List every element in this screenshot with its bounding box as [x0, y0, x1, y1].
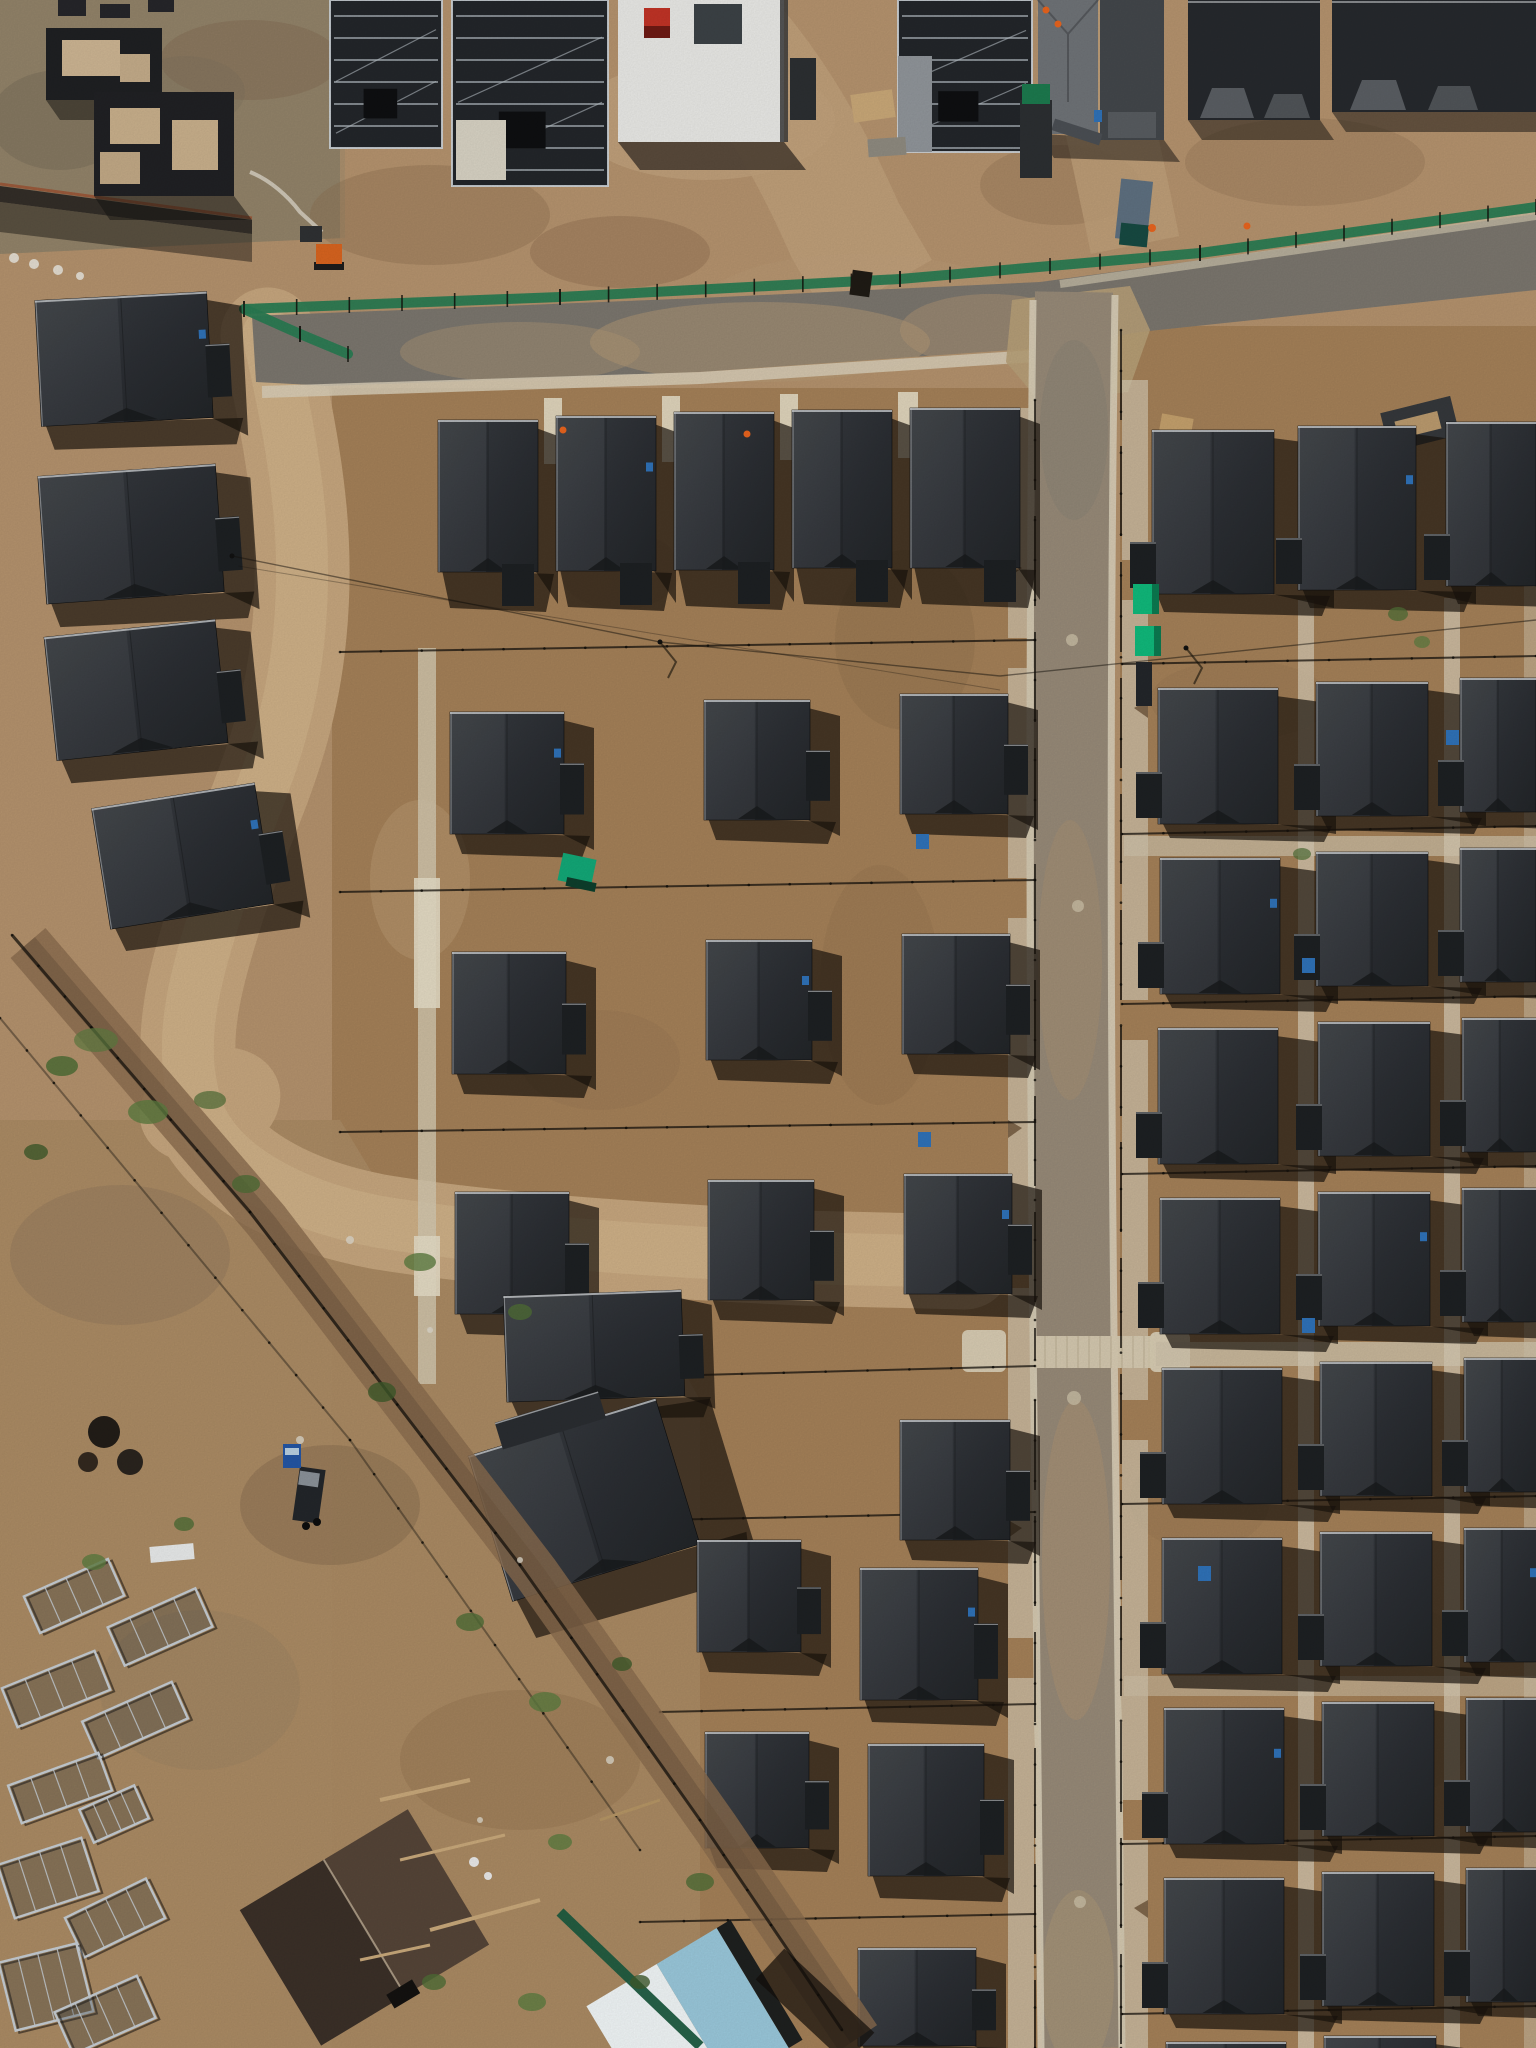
photo-grain-overlay [0, 0, 1536, 2048]
aerial-photo-construction-site [0, 0, 1536, 2048]
aerial-photo-canvas [0, 0, 1536, 2048]
